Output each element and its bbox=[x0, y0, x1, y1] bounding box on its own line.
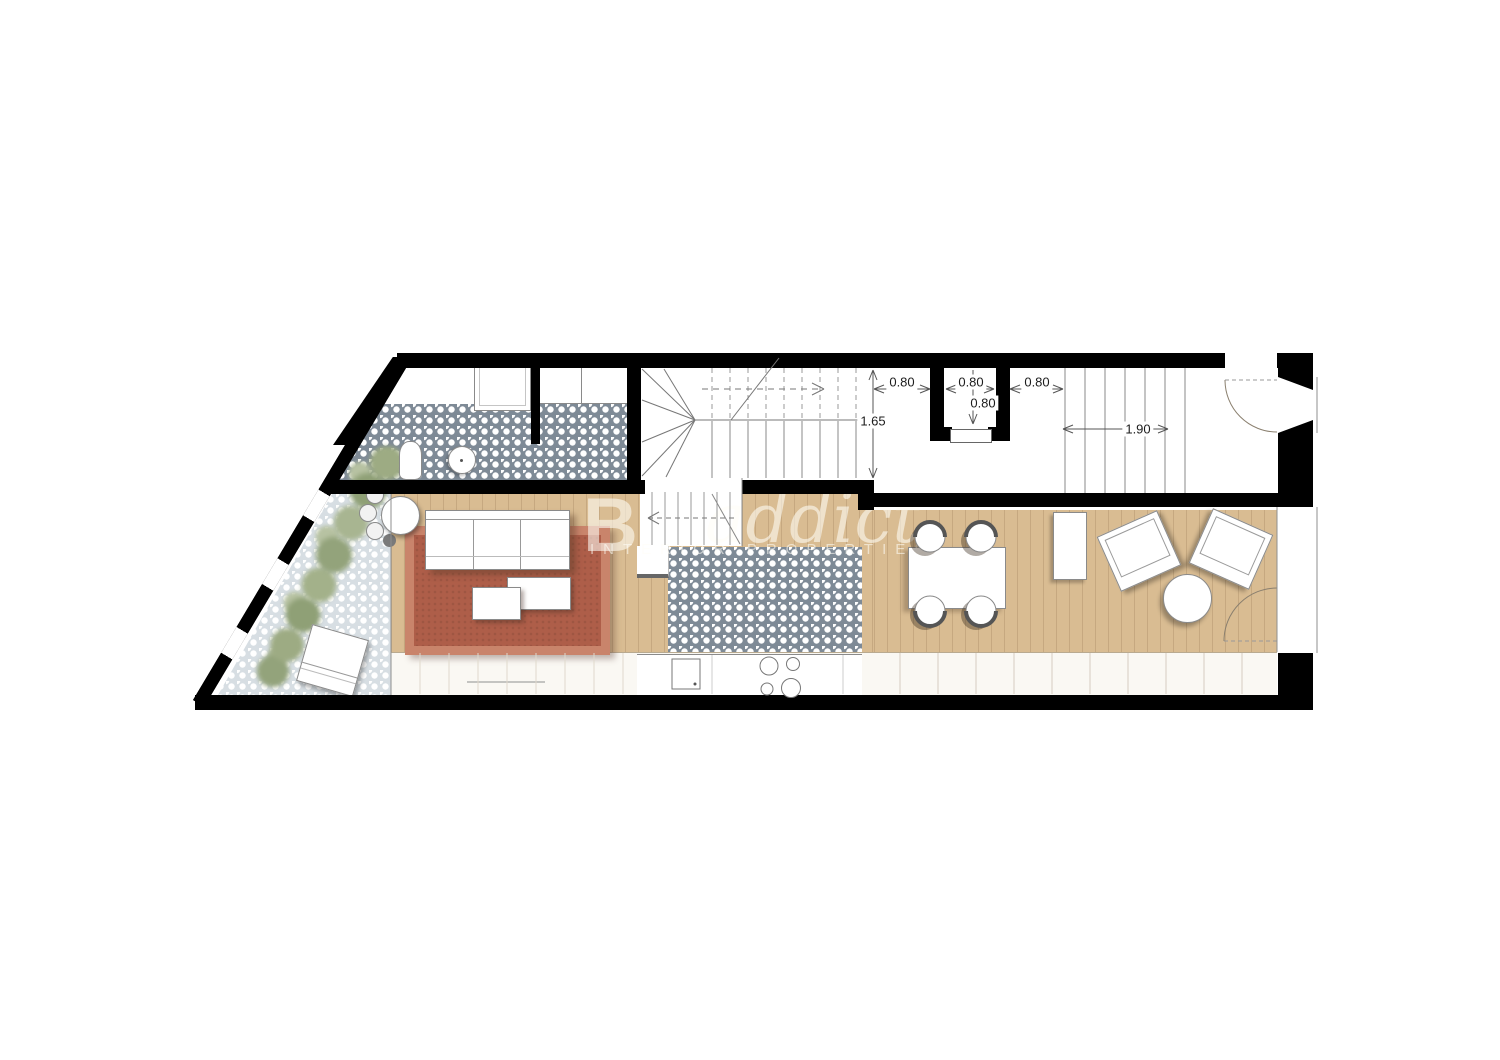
dim-shaft-depth: 0.80 bbox=[967, 396, 998, 411]
dining-chairs bbox=[910, 522, 996, 630]
dining-chair bbox=[961, 596, 996, 630]
deck-plank-lines bbox=[420, 653, 623, 694]
dim-shaft-width: 0.80 bbox=[955, 375, 986, 390]
glass-boundary-lines bbox=[391, 377, 1317, 695]
floor-plan-canvas: 0.80 0.80 0.80 0.80 1.65 1.90 B addict I… bbox=[0, 0, 1500, 1060]
dim-stair-width: 1.90 bbox=[1122, 422, 1153, 437]
dining-chair bbox=[910, 522, 945, 556]
stair-lower-treads bbox=[712, 421, 856, 478]
stair-upper-treads bbox=[712, 368, 856, 420]
cooktop-burners bbox=[760, 657, 801, 698]
plan-linework bbox=[0, 0, 1500, 1060]
dim-hall-depth: 1.65 bbox=[857, 414, 888, 429]
stair-winder-fan bbox=[642, 358, 860, 477]
dining-chair bbox=[910, 596, 945, 630]
dim-right-of-shaft: 0.80 bbox=[1021, 375, 1052, 390]
stair-direction-arrow bbox=[702, 383, 824, 395]
dining-chair bbox=[961, 522, 996, 556]
door-swings bbox=[1224, 380, 1277, 641]
kitchen-sink bbox=[672, 659, 700, 689]
dim-left-of-shaft: 0.80 bbox=[886, 375, 917, 390]
